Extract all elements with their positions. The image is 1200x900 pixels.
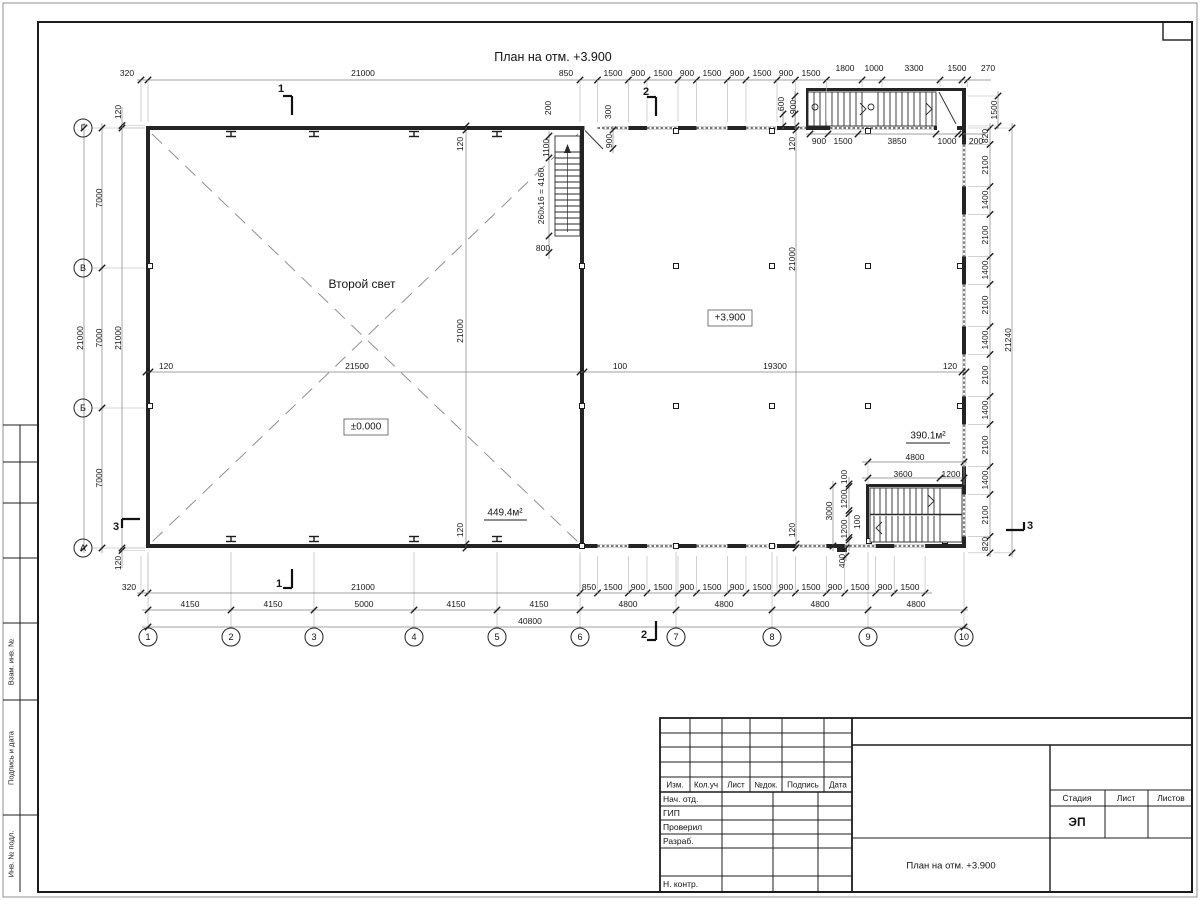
title-block-lines	[660, 718, 1192, 892]
stair-west	[555, 136, 580, 236]
door-leaf	[585, 131, 603, 150]
void-cross-dashes	[152, 134, 578, 542]
stair-north	[808, 92, 936, 126]
drawing-sheet: План на отм. +3.900 План на отм. +3.900 …	[0, 0, 1200, 900]
level-boxes	[344, 310, 950, 520]
door-leaf	[939, 92, 956, 124]
steel-columns	[226, 132, 502, 542]
axis-bubbles	[74, 119, 973, 646]
grid-axis-lines	[92, 128, 964, 628]
side-strip-lines	[3, 425, 38, 892]
corner-doc-box	[1163, 22, 1192, 40]
stair-south	[870, 488, 962, 542]
sheet-frame	[3, 3, 1197, 897]
floor-plan-canvas	[0, 0, 1200, 900]
